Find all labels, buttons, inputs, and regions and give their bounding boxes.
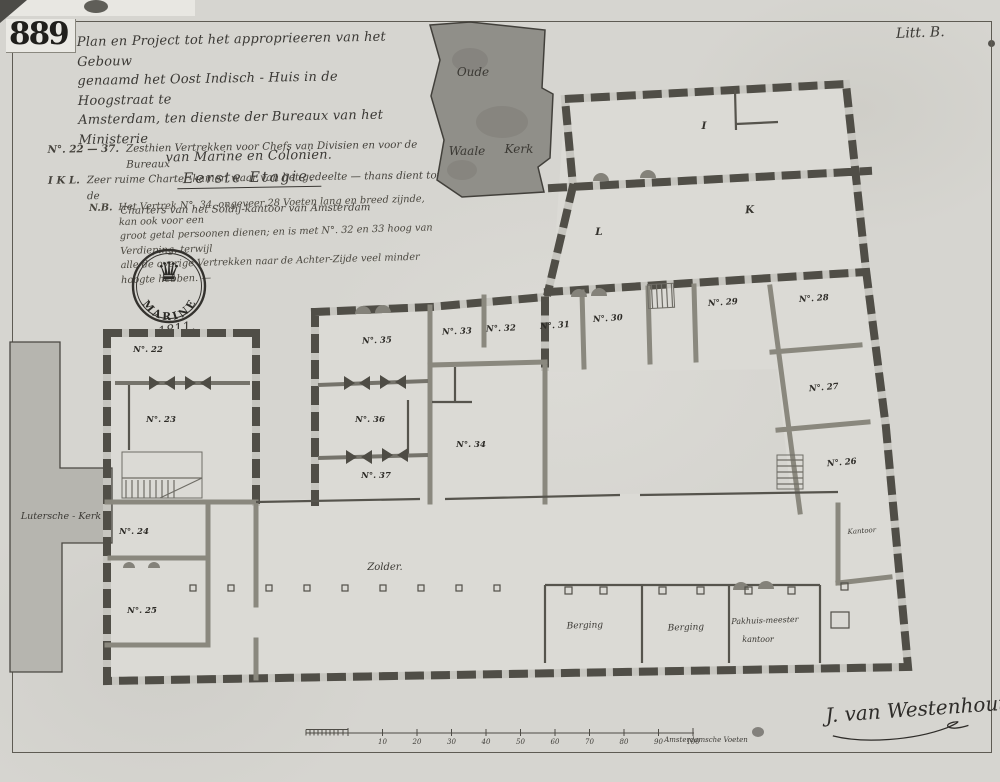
scanned-sheet: 889 Litt. B. Plan en Project tot het app… [0,0,1000,782]
oude-waale-kerk-block: Oude Waale Kerk [430,22,553,197]
room-label-35: N°. 35 [361,335,392,346]
room-label-37: N°. 37 [360,471,391,481]
oude-kerk-label-word2: Waale [449,144,486,158]
room-label-33: N°. 33 [441,326,472,337]
oude-kerk-label-word3: Kerk [504,142,534,156]
room-label-31: N°. 31 [539,320,570,332]
lutersche-kerk-block: Lutersche - Kerk [10,342,112,672]
scale-tick-80: 80 [620,738,629,746]
ink-smudge [752,727,764,737]
room-label-25: N°. 25 [126,606,157,616]
scale-tick-30: 30 [447,738,456,746]
room-label-24: N°. 24 [118,527,149,537]
room-letter-k: K [744,204,756,217]
scale-tick-90: 90 [654,738,663,746]
berging1-label: Berging [566,620,604,631]
scale-tick-40: 40 [481,738,491,746]
floor-plan-drawing: Oude Waale Kerk Lutersche - Kerk [0,0,1000,782]
scale-tick-10: 10 [378,738,387,746]
berging2-label: Berging [667,622,705,633]
room-label-36: N°. 36 [354,415,385,425]
room-label-32: N°. 32 [485,323,516,334]
scale-bar [306,728,694,736]
scale-tick-20: 20 [412,738,422,746]
scale-tick-60: 60 [551,738,560,746]
scale-tick-50: 50 [516,738,525,746]
pakhuis-label-line2: kantoor [742,635,775,644]
room-letter-l: L [594,226,602,238]
zolder-label: Zolder. [366,562,402,573]
scale-tick-70: 70 [585,738,594,746]
scale-unit-label: Amsterdamsche Voeten [663,736,748,744]
room-label-23: N°. 23 [145,415,176,425]
oude-kerk-label-word1: Oude [457,65,489,79]
room-label-22: N°. 22 [132,345,163,355]
lutersche-kerk-label: Lutersche - Kerk [20,511,102,522]
scale-bar-labels: 10 20 30 40 50 60 70 80 90 100 Amsterdam… [378,736,748,746]
room-label-34: N°. 34 [455,440,486,450]
